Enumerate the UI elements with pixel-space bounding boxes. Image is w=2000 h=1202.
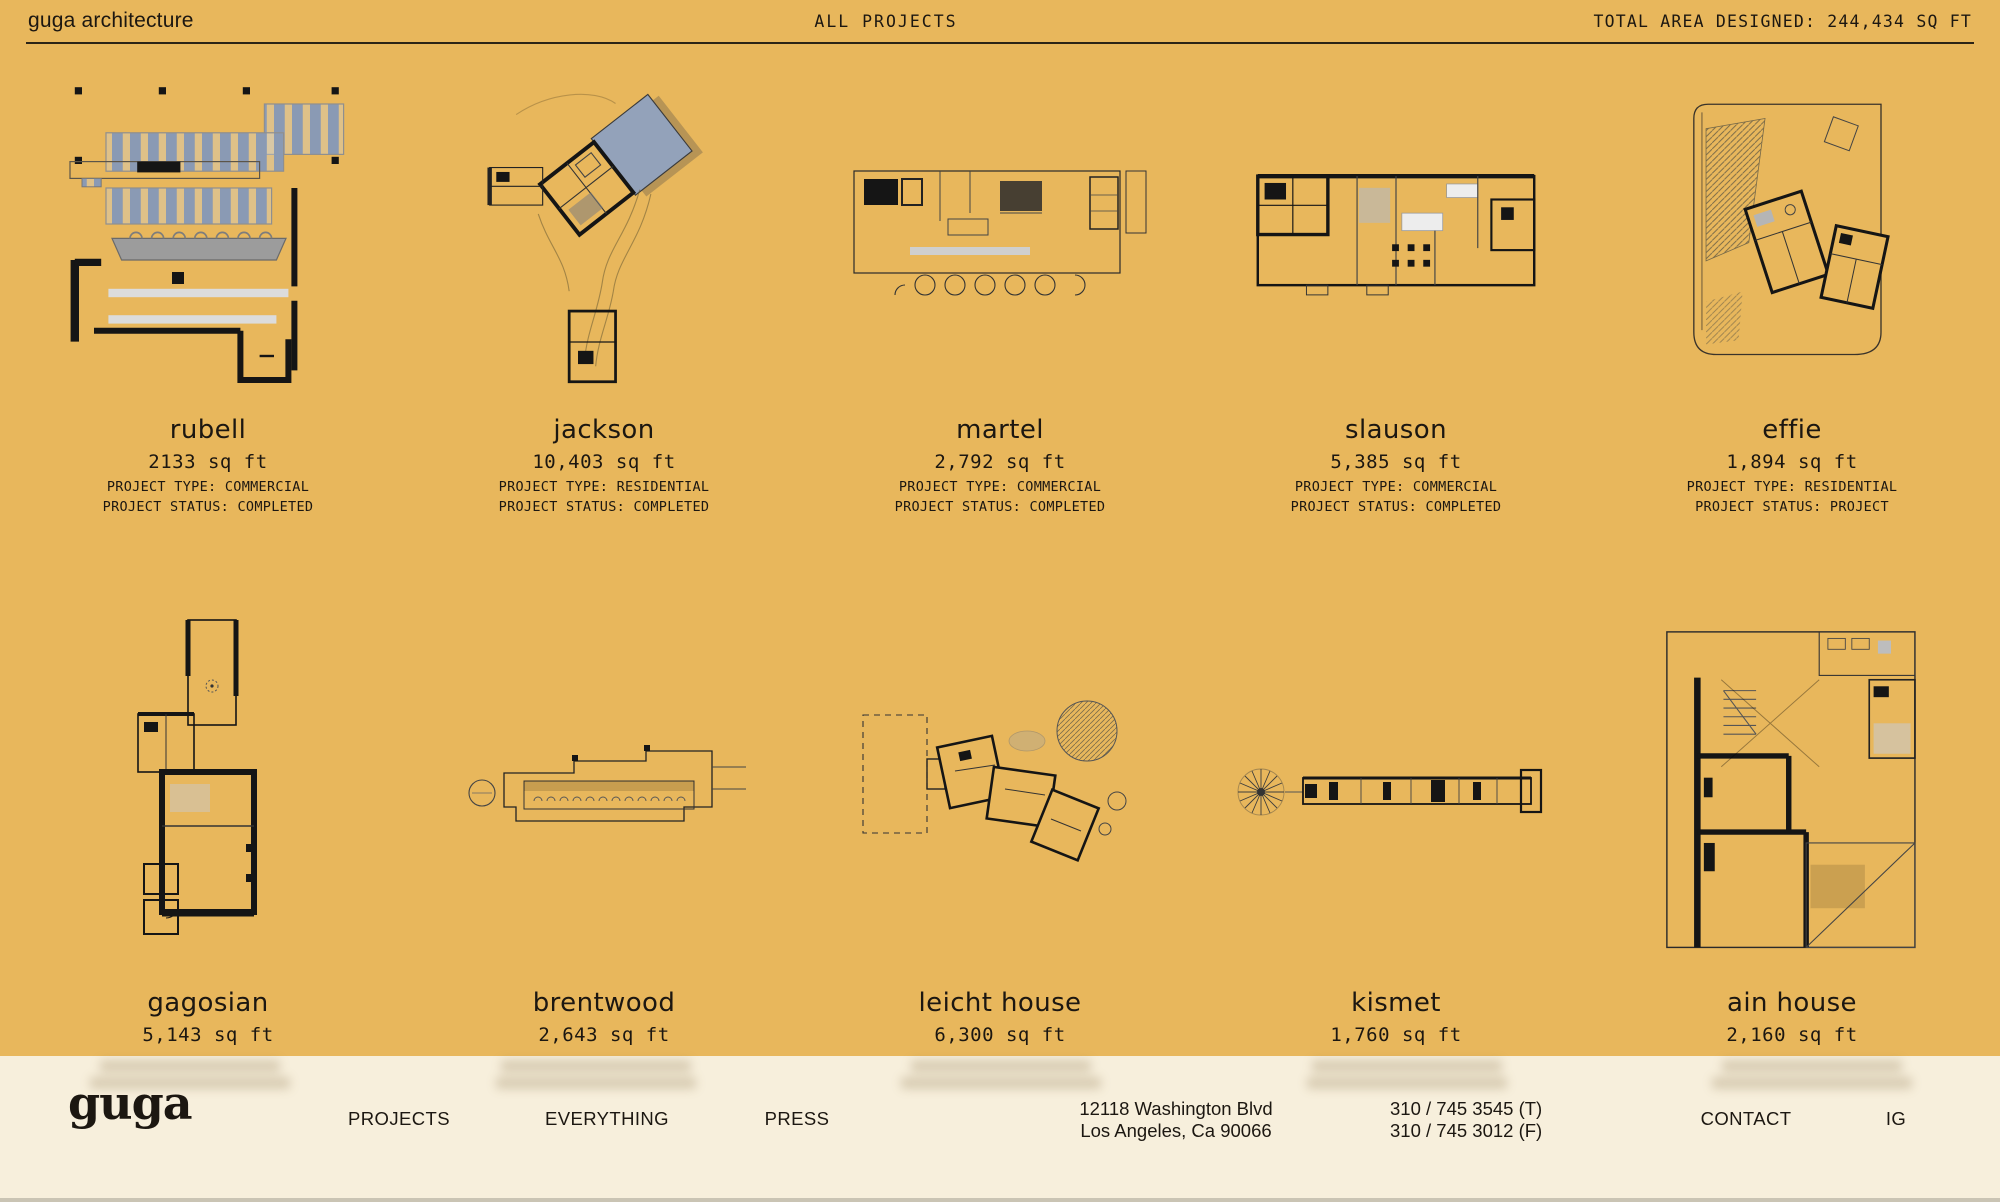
- ghost-text-smudge: [1307, 1060, 1507, 1089]
- project-title[interactable]: rubell: [170, 413, 247, 447]
- ghost-text-smudge: [1712, 1060, 1912, 1089]
- plan-box: [1675, 58, 1910, 413]
- project-type: PROJECT TYPE: RESIDENTIAL: [1687, 477, 1898, 497]
- site-brand[interactable]: guga architecture: [28, 9, 194, 33]
- project-area: 2,792 sq ft: [934, 447, 1065, 477]
- project-card-slauson: slauson 5,385 sq ft PROJECT TYPE: COMMER…: [1198, 58, 1594, 517]
- project-card-jackson: jackson 10,403 sq ft PROJECT TYPE: RESID…: [406, 58, 802, 517]
- project-type: PROJECT TYPE: COMMERCIAL: [1295, 477, 1497, 497]
- project-card-ain-house: ain house 2,160 sq ft: [1594, 601, 1990, 1050]
- floor-plan-brentwood[interactable]: [454, 729, 754, 859]
- project-title[interactable]: slauson: [1345, 413, 1447, 447]
- project-card-martel: martel 2,792 sq ft PROJECT TYPE: COMMERC…: [802, 58, 1198, 517]
- address-line-2: Los Angeles, Ca 90066: [1079, 1120, 1272, 1142]
- total-area-designed: TOTAL AREA DESIGNED: 244,434 SQ FT: [1593, 12, 1972, 31]
- footer-instagram-link[interactable]: IG: [1886, 1108, 1906, 1130]
- floor-plan-rubell[interactable]: [58, 82, 358, 390]
- plan-box: [58, 58, 358, 413]
- floor-plan-jackson[interactable]: [472, 81, 737, 391]
- address-line-1: 12118 Washington Blvd: [1079, 1098, 1272, 1120]
- project-area: 5,385 sq ft: [1330, 447, 1461, 477]
- floor-plan-martel[interactable]: [850, 161, 1150, 311]
- floor-plan-slauson[interactable]: [1250, 170, 1542, 302]
- project-area: 1,760 sq ft: [1330, 1020, 1461, 1050]
- plan-box: [472, 58, 737, 413]
- plan-box: [454, 601, 754, 986]
- project-card-rubell: rubell 2133 sq ft PROJECT TYPE: COMMERCI…: [10, 58, 406, 517]
- floor-plan-kismet[interactable]: [1231, 744, 1561, 844]
- projects-row-2: gagosian 5,143 sq ft bre: [0, 601, 2000, 1050]
- plan-box: [126, 601, 291, 986]
- footer-phones: 310 / 745 3545 (T) 310 / 745 3012 (F): [1390, 1098, 1542, 1142]
- project-status: PROJECT STATUS: COMPLETED: [1291, 497, 1502, 517]
- page-title: ALL PROJECTS: [814, 12, 957, 31]
- project-area: 2,643 sq ft: [538, 1020, 669, 1050]
- project-title[interactable]: ain house: [1727, 986, 1857, 1020]
- plan-box: [855, 601, 1145, 986]
- project-title[interactable]: leicht house: [919, 986, 1082, 1020]
- project-status: PROJECT STATUS: COMPLETED: [499, 497, 710, 517]
- project-area: 2133 sq ft: [148, 447, 267, 477]
- project-title[interactable]: jackson: [553, 413, 654, 447]
- header-divider: [26, 42, 1974, 44]
- project-card-brentwood: brentwood 2,643 sq ft: [406, 601, 802, 1050]
- plan-box: [1250, 58, 1542, 413]
- ghost-text-smudge: [901, 1060, 1101, 1089]
- floor-plan-gagosian[interactable]: [126, 614, 291, 974]
- floor-plan-effie[interactable]: [1675, 88, 1910, 383]
- project-card-effie: effie 1,894 sq ft PROJECT TYPE: RESIDENT…: [1594, 58, 1990, 517]
- top-bar: guga architecture ALL PROJECTS TOTAL ARE…: [0, 0, 2000, 42]
- project-title[interactable]: martel: [956, 413, 1044, 447]
- footer: guga PROJECTS EVERYTHING PRESS 12118 Was…: [0, 1056, 2000, 1202]
- ghost-text-smudge: [496, 1060, 696, 1089]
- project-area: 5,143 sq ft: [142, 1020, 273, 1050]
- project-card-gagosian: gagosian 5,143 sq ft: [10, 601, 406, 1050]
- project-card-kismet: kismet 1,760 sq ft: [1198, 601, 1594, 1050]
- phone-fax: 310 / 745 3012 (F): [1390, 1120, 1542, 1142]
- footer-contact-link[interactable]: CONTACT: [1701, 1108, 1792, 1130]
- project-title[interactable]: effie: [1762, 413, 1822, 447]
- plan-box: [1231, 601, 1561, 986]
- project-status: PROJECT STATUS: PROJECT: [1695, 497, 1889, 517]
- phone-telephone: 310 / 745 3545 (T): [1390, 1098, 1542, 1120]
- project-area: 6,300 sq ft: [934, 1020, 1065, 1050]
- project-type: PROJECT TYPE: COMMERCIAL: [899, 477, 1101, 497]
- project-area: 2,160 sq ft: [1726, 1020, 1857, 1050]
- project-area: 10,403 sq ft: [532, 447, 675, 477]
- plan-box: [850, 58, 1150, 413]
- project-title[interactable]: kismet: [1351, 986, 1441, 1020]
- footer-nav-everything[interactable]: EVERYTHING: [545, 1108, 669, 1130]
- footer-logo[interactable]: guga: [68, 1080, 192, 1126]
- project-type: PROJECT TYPE: RESIDENTIAL: [499, 477, 710, 497]
- project-title[interactable]: gagosian: [147, 986, 268, 1020]
- project-title[interactable]: brentwood: [533, 986, 675, 1020]
- floor-plan-ain-house[interactable]: [1656, 614, 1928, 974]
- footer-address: 12118 Washington Blvd Los Angeles, Ca 90…: [1079, 1098, 1272, 1142]
- floor-plan-leicht-house[interactable]: [855, 679, 1145, 909]
- project-area: 1,894 sq ft: [1726, 447, 1857, 477]
- footer-nav-press[interactable]: PRESS: [765, 1108, 830, 1130]
- projects-row-1: rubell 2133 sq ft PROJECT TYPE: COMMERCI…: [0, 58, 2000, 517]
- footer-nav-projects[interactable]: PROJECTS: [348, 1108, 450, 1130]
- plan-box: [1656, 601, 1928, 986]
- project-status: PROJECT STATUS: COMPLETED: [103, 497, 314, 517]
- project-type: PROJECT TYPE: COMMERCIAL: [107, 477, 309, 497]
- project-card-leicht-house: leicht house 6,300 sq ft: [802, 601, 1198, 1050]
- project-status: PROJECT STATUS: COMPLETED: [895, 497, 1106, 517]
